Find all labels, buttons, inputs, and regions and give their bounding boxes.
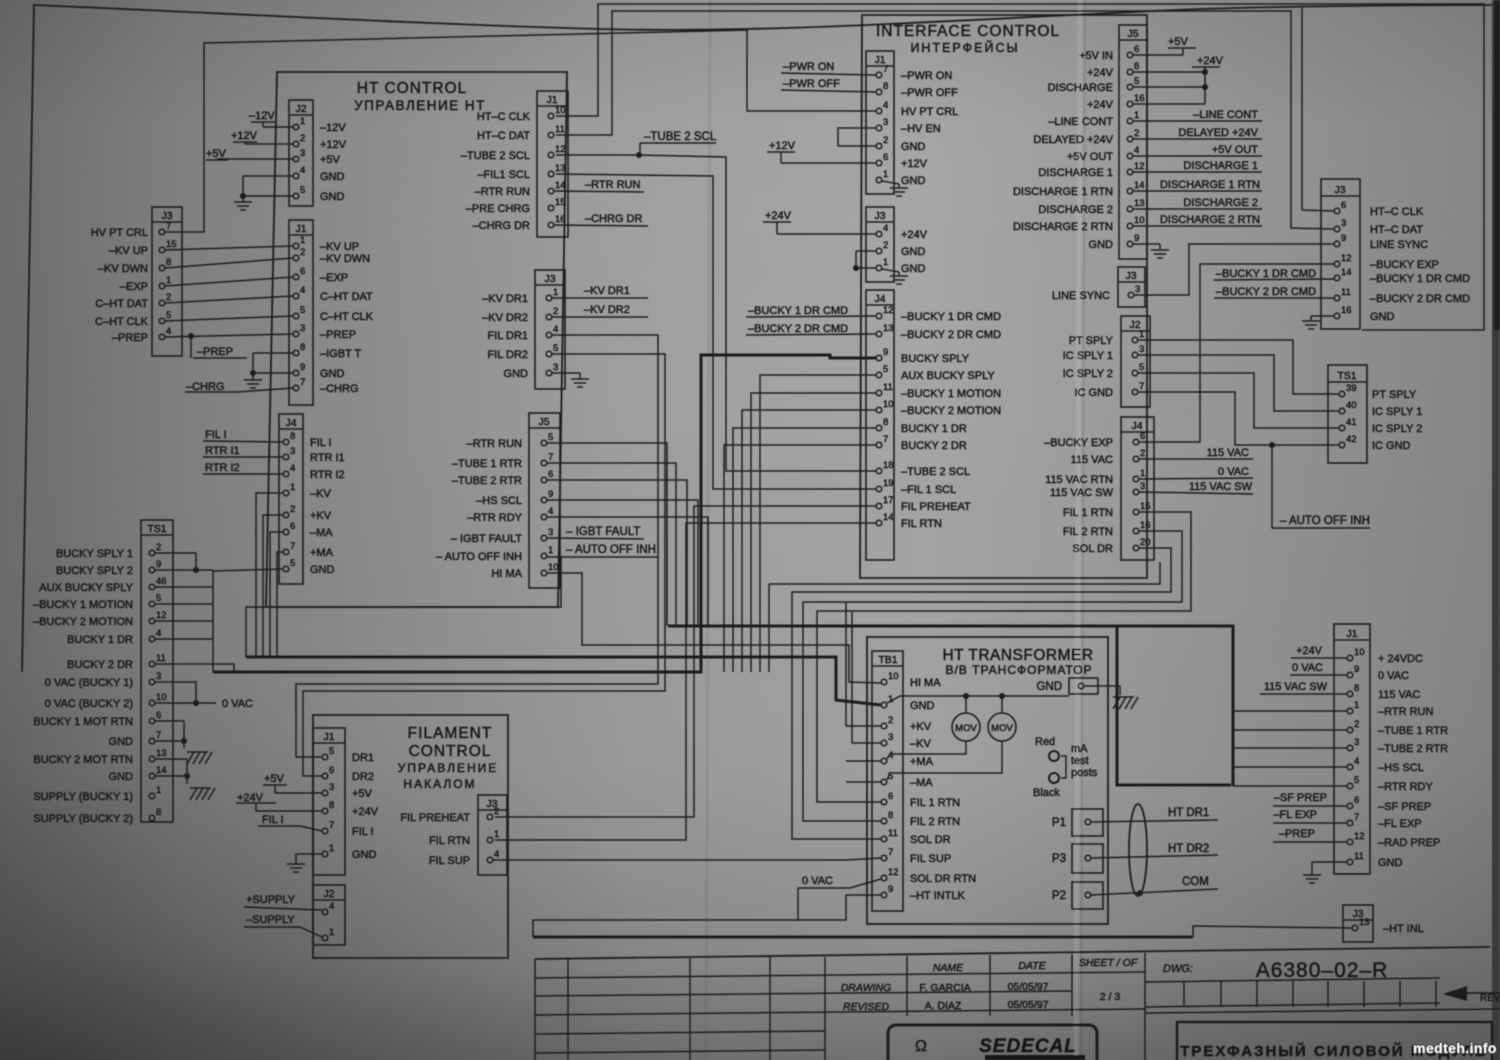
svg-text:–BUCKY 1 MOTION: –BUCKY 1 MOTION xyxy=(901,388,1001,400)
svg-text:P1: P1 xyxy=(1052,817,1066,829)
svg-text:J1: J1 xyxy=(1346,628,1357,640)
svg-text:–KV DWN: –KV DWN xyxy=(98,263,148,275)
svg-text:2: 2 xyxy=(1140,448,1145,459)
svg-text:+5V: +5V xyxy=(320,154,341,166)
svg-text:J1: J1 xyxy=(295,223,306,235)
svg-text:–KV: –KV xyxy=(310,488,331,500)
svg-text:–PRE CHRG: –PRE CHRG xyxy=(466,203,530,215)
svg-text:8: 8 xyxy=(300,342,305,353)
svg-text:BUCKY 1 MOT RTN: BUCKY 1 MOT RTN xyxy=(33,716,133,728)
svg-text:–FIL 1 SCL: –FIL 1 SCL xyxy=(901,484,956,496)
svg-text:12: 12 xyxy=(1341,253,1352,264)
svg-text:+24V: +24V xyxy=(901,229,928,241)
svg-text:10: 10 xyxy=(883,399,894,410)
svg-text:15: 15 xyxy=(166,239,177,250)
svg-text:+24V: +24V xyxy=(1087,67,1114,79)
svg-text:7: 7 xyxy=(300,377,305,388)
svg-text:SOL DR: SOL DR xyxy=(910,834,951,846)
svg-text:0 VAC: 0 VAC xyxy=(1378,670,1409,682)
svg-text:39: 39 xyxy=(1346,383,1357,394)
svg-text:IC GND: IC GND xyxy=(1075,387,1114,399)
svg-text:IC SPLY 1: IC SPLY 1 xyxy=(1063,350,1113,362)
svg-text:RTR I2: RTR I2 xyxy=(310,469,345,481)
svg-text:3: 3 xyxy=(883,117,888,128)
svg-text:7: 7 xyxy=(548,452,553,463)
svg-text:7: 7 xyxy=(329,820,334,831)
svg-text:–HT INTLK: –HT INTLK xyxy=(910,890,965,902)
svg-text:8: 8 xyxy=(156,807,161,818)
svg-text:1: 1 xyxy=(329,927,334,938)
svg-text:14: 14 xyxy=(1341,267,1352,278)
svg-text:–BUCKY EXP: –BUCKY EXP xyxy=(1370,259,1439,271)
svg-text:14: 14 xyxy=(555,180,566,191)
svg-text:F. GARCIA: F. GARCIA xyxy=(919,982,970,994)
svg-text:13: 13 xyxy=(883,323,894,334)
svg-text:DELAYED +24V: DELAYED +24V xyxy=(1178,127,1258,139)
svg-text:11: 11 xyxy=(555,124,565,135)
svg-text:12: 12 xyxy=(555,144,566,155)
svg-text:–TUBE 2 SCL: –TUBE 2 SCL xyxy=(901,466,970,478)
svg-text:7: 7 xyxy=(883,434,888,445)
svg-text:3: 3 xyxy=(1341,218,1346,229)
svg-text:2: 2 xyxy=(553,306,558,317)
svg-text:–CHRG: –CHRG xyxy=(320,383,359,395)
svg-text:НАКАЛОМ: НАКАЛОМ xyxy=(403,777,476,791)
svg-text:–CHRG DR: –CHRG DR xyxy=(473,220,531,232)
svg-text:4: 4 xyxy=(553,324,558,335)
svg-text:DISCHARGE 1: DISCHARGE 1 xyxy=(1183,160,1258,172)
svg-text:–LINE CONT: –LINE CONT xyxy=(1193,109,1258,121)
svg-text:–BUCKY 1 DR CMD: –BUCKY 1 DR CMD xyxy=(1370,273,1470,285)
svg-text:GND: GND xyxy=(1089,239,1114,251)
svg-text:CONTROL: CONTROL xyxy=(409,743,492,760)
svg-text:+SUPPLY: +SUPPLY xyxy=(246,894,296,906)
svg-text:–12V: –12V xyxy=(249,110,275,122)
svg-text:+24V: +24V xyxy=(765,210,792,222)
svg-text:1: 1 xyxy=(1140,468,1145,479)
svg-text:RTR I1: RTR I1 xyxy=(205,445,240,457)
svg-text:7: 7 xyxy=(166,221,171,232)
svg-text:2: 2 xyxy=(883,240,888,251)
svg-text:J5: J5 xyxy=(538,416,549,428)
svg-text:GND: GND xyxy=(320,171,345,183)
svg-text:+5V: +5V xyxy=(1168,36,1189,48)
svg-text:2: 2 xyxy=(300,247,305,258)
svg-text:42: 42 xyxy=(1346,434,1357,445)
svg-text:1: 1 xyxy=(166,275,171,286)
svg-text:FIL DR2: FIL DR2 xyxy=(487,349,528,361)
svg-text:10: 10 xyxy=(888,671,899,682)
svg-text:PT SPLY: PT SPLY xyxy=(1069,335,1114,347)
svg-text:+24V: +24V xyxy=(1296,645,1323,657)
svg-text:3: 3 xyxy=(300,148,305,159)
svg-text:– AUTO OFF INH: – AUTO OFF INH xyxy=(566,544,656,556)
svg-text:9: 9 xyxy=(1354,664,1359,675)
svg-text:AUX BUCKY SPLY: AUX BUCKY SPLY xyxy=(901,370,995,382)
svg-text:FIL I: FIL I xyxy=(262,814,284,826)
svg-text:6: 6 xyxy=(888,791,893,802)
svg-text:6: 6 xyxy=(300,266,305,277)
svg-text:4: 4 xyxy=(494,849,499,860)
svg-text:DRAWING: DRAWING xyxy=(841,982,892,994)
svg-text:+24V: +24V xyxy=(1197,55,1224,67)
svg-text:115 VAC SW: 115 VAC SW xyxy=(1189,481,1253,493)
svg-text:3: 3 xyxy=(290,446,295,457)
svg-text:+5V: +5V xyxy=(206,148,227,160)
svg-text:BUCKY SPLY 1: BUCKY SPLY 1 xyxy=(56,548,133,560)
svg-text:MOV: MOV xyxy=(955,723,977,734)
svg-text:J4: J4 xyxy=(874,293,885,305)
svg-text:NAME: NAME xyxy=(933,962,964,974)
svg-text:GND: GND xyxy=(310,564,335,576)
svg-text:–KV DR1: –KV DR1 xyxy=(584,285,630,297)
svg-text:–KV: –KV xyxy=(910,738,931,750)
svg-text:8: 8 xyxy=(1134,61,1139,72)
svg-text:DISCHARGE 1 RTN: DISCHARGE 1 RTN xyxy=(1160,179,1260,191)
svg-text:1: 1 xyxy=(883,169,888,180)
svg-text:12: 12 xyxy=(883,305,894,316)
svg-text:4: 4 xyxy=(548,506,553,517)
svg-text:16: 16 xyxy=(1134,93,1145,104)
svg-text:–LINE CONT: –LINE CONT xyxy=(1048,116,1113,128)
svg-text:FIL PREHEAT: FIL PREHEAT xyxy=(400,812,470,824)
svg-text:16: 16 xyxy=(1140,520,1151,531)
svg-text:9: 9 xyxy=(1134,233,1139,244)
svg-text:–IGBT T: –IGBT T xyxy=(320,348,361,360)
svg-text:–BUCKY 2 MOTION: –BUCKY 2 MOTION xyxy=(901,405,1001,417)
svg-text:–PWR ON: –PWR ON xyxy=(901,70,952,82)
svg-text:13: 13 xyxy=(156,748,167,759)
svg-text:AUX BUCKY SPLY: AUX BUCKY SPLY xyxy=(39,582,133,594)
svg-text:1: 1 xyxy=(1139,329,1144,340)
svg-text:BUCKY 1 DR: BUCKY 1 DR xyxy=(67,634,133,646)
svg-text:1: 1 xyxy=(548,545,553,556)
svg-text:10: 10 xyxy=(156,692,167,703)
svg-text:2: 2 xyxy=(1134,128,1139,139)
svg-text:–RTR RUN: –RTR RUN xyxy=(585,179,640,191)
svg-text:LINE SYNC: LINE SYNC xyxy=(1370,239,1428,251)
svg-text:GND: GND xyxy=(504,368,529,380)
svg-text:mA: mA xyxy=(1071,743,1088,755)
svg-text:3: 3 xyxy=(888,732,893,743)
svg-text:–MA: –MA xyxy=(910,777,933,789)
svg-text:115 VAC SW: 115 VAC SW xyxy=(1264,681,1328,693)
svg-text:10: 10 xyxy=(555,105,566,116)
svg-text:FIL I: FIL I xyxy=(205,429,227,441)
svg-text:115 VAC: 115 VAC xyxy=(1071,454,1113,466)
svg-text:BUCKY 2 MOT RTN: BUCKY 2 MOT RTN xyxy=(33,754,133,766)
svg-text:1: 1 xyxy=(883,257,888,268)
svg-text:SOL DR RTN: SOL DR RTN xyxy=(910,873,976,885)
svg-text:6: 6 xyxy=(883,152,888,163)
svg-text:–KV DR1: –KV DR1 xyxy=(482,293,528,305)
svg-text:19: 19 xyxy=(883,478,894,489)
svg-text:GND: GND xyxy=(901,246,926,258)
svg-text:2: 2 xyxy=(883,135,888,146)
svg-text:–CHRG: –CHRG xyxy=(186,381,225,393)
svg-text:0 VAC: 0 VAC xyxy=(222,698,253,710)
svg-text:1: 1 xyxy=(1354,700,1359,711)
svg-text:11: 11 xyxy=(156,653,166,664)
svg-text:5: 5 xyxy=(1354,775,1359,786)
svg-text:–PREP: –PREP xyxy=(1279,828,1315,840)
svg-text:– IGBT FAULT: – IGBT FAULT xyxy=(566,526,640,538)
svg-text:6: 6 xyxy=(329,765,334,776)
svg-text:J2: J2 xyxy=(323,888,334,900)
svg-text:FIL 1 RTN: FIL 1 RTN xyxy=(1063,507,1113,519)
svg-text:–KV DR2: –KV DR2 xyxy=(584,304,630,316)
svg-text:3: 3 xyxy=(1354,737,1359,748)
svg-text:HT TRANSFORMER: HT TRANSFORMER xyxy=(942,647,1093,664)
svg-text:УПРАВЛЕНИЕ НТ: УПРАВЛЕНИЕ НТ xyxy=(354,98,486,113)
svg-text:3: 3 xyxy=(548,527,553,538)
svg-text:+12V: +12V xyxy=(320,139,347,151)
svg-text:posts: posts xyxy=(1071,767,1098,779)
svg-text:HI MA: HI MA xyxy=(910,677,941,689)
svg-text:+24V: +24V xyxy=(352,806,379,818)
svg-text:6: 6 xyxy=(1134,44,1139,55)
svg-text:0 VAC: 0 VAC xyxy=(802,875,833,887)
svg-text:13: 13 xyxy=(555,163,566,174)
svg-text:test: test xyxy=(1071,755,1089,767)
svg-text:BUCKY 2 DR: BUCKY 2 DR xyxy=(901,440,967,452)
svg-text:12: 12 xyxy=(156,610,167,621)
svg-text:A. DIAZ: A. DIAZ xyxy=(925,1000,962,1012)
svg-text:5: 5 xyxy=(329,746,334,757)
svg-text:RTR I1: RTR I1 xyxy=(310,452,345,464)
svg-text:–BUCKY 1 DR CMD: –BUCKY 1 DR CMD xyxy=(901,311,1001,323)
svg-text:IC SPLY 2: IC SPLY 2 xyxy=(1063,368,1113,380)
svg-text:HV PT CRL: HV PT CRL xyxy=(901,106,958,118)
svg-text:8: 8 xyxy=(888,810,893,821)
svg-text:–TUBE 2 SCL: –TUBE 2 SCL xyxy=(644,131,717,143)
svg-text:–RTR RDY: –RTR RDY xyxy=(467,512,522,524)
svg-text:RTR I2: RTR I2 xyxy=(205,462,240,474)
svg-text:3: 3 xyxy=(329,782,334,793)
svg-text:–BUCKY 2 DR CMD: –BUCKY 2 DR CMD xyxy=(1370,293,1470,305)
svg-text:12: 12 xyxy=(1134,161,1145,172)
svg-text:FIL DR1: FIL DR1 xyxy=(487,330,528,342)
svg-text:–PWR OFF: –PWR OFF xyxy=(901,87,958,99)
svg-text:–BUCKY 2 DR CMD: –BUCKY 2 DR CMD xyxy=(748,323,848,335)
svg-text:–EXP: –EXP xyxy=(120,281,148,293)
svg-text:IC SPLY 1: IC SPLY 1 xyxy=(1372,406,1422,418)
svg-text:7: 7 xyxy=(888,847,893,858)
svg-text:1: 1 xyxy=(290,482,295,493)
svg-text:GND: GND xyxy=(320,191,345,203)
svg-text:GND: GND xyxy=(1370,311,1395,323)
svg-text:5: 5 xyxy=(553,343,558,354)
svg-text:1: 1 xyxy=(329,843,334,854)
svg-text:HT–C CLK: HT–C CLK xyxy=(477,111,531,123)
svg-text:115 VAC: 115 VAC xyxy=(1378,689,1420,701)
svg-text:GND: GND xyxy=(320,368,345,380)
svg-text:C–HT DAT: C–HT DAT xyxy=(95,298,148,310)
svg-text:DWG:: DWG: xyxy=(1163,963,1193,975)
svg-text:11: 11 xyxy=(888,828,898,839)
svg-text:IC SPLY 2: IC SPLY 2 xyxy=(1372,423,1422,435)
svg-text:+KV: +KV xyxy=(310,510,332,522)
svg-text:C–HT CLK: C–HT CLK xyxy=(95,316,149,328)
svg-text:3: 3 xyxy=(300,323,305,334)
svg-text:–BUCKY 1 MOTION: –BUCKY 1 MOTION xyxy=(33,599,133,611)
svg-text:–BUCKY 1 DR CMD: –BUCKY 1 DR CMD xyxy=(748,305,848,317)
svg-text:0 VAC (BUCKY 1): 0 VAC (BUCKY 1) xyxy=(45,677,133,689)
svg-text:1: 1 xyxy=(494,829,499,840)
svg-text:0 VAC (BUCKY 2): 0 VAC (BUCKY 2) xyxy=(45,698,133,710)
svg-text:4: 4 xyxy=(166,326,171,337)
svg-text:–CHRG DR: –CHRG DR xyxy=(585,213,643,225)
svg-text:2: 2 xyxy=(300,133,305,144)
svg-text:05/05/97: 05/05/97 xyxy=(1008,981,1049,993)
svg-text:9: 9 xyxy=(300,362,305,373)
svg-text:J4: J4 xyxy=(285,417,296,429)
svg-text:13: 13 xyxy=(1134,198,1145,209)
svg-text:5: 5 xyxy=(548,432,553,443)
svg-text:1: 1 xyxy=(156,785,161,796)
svg-text:2: 2 xyxy=(1354,719,1359,730)
svg-text:3: 3 xyxy=(1140,481,1145,492)
svg-text:–PREP: –PREP xyxy=(320,329,356,341)
svg-text:1: 1 xyxy=(553,287,558,298)
svg-text:9: 9 xyxy=(156,559,161,570)
svg-text:115 VAC RTN: 115 VAC RTN xyxy=(1045,474,1113,486)
svg-text:16: 16 xyxy=(1341,305,1352,316)
svg-text:GND: GND xyxy=(352,849,377,861)
svg-text:HV PT CRL: HV PT CRL xyxy=(91,227,148,239)
svg-text:–BUCKY EXP: –BUCKY EXP xyxy=(1044,437,1113,449)
svg-text:–KV DR2: –KV DR2 xyxy=(482,312,528,324)
svg-text:P2: P2 xyxy=(1052,890,1066,902)
svg-text:FIL RTN: FIL RTN xyxy=(429,835,470,847)
svg-text:8: 8 xyxy=(1354,683,1359,694)
svg-text:–RTR RUN: –RTR RUN xyxy=(475,186,530,198)
svg-text:FILAMENT: FILAMENT xyxy=(408,725,493,742)
svg-text:DISCHARGE 2 RTN: DISCHARGE 2 RTN xyxy=(1013,221,1113,233)
svg-text:DISCHARGE 2 RTN: DISCHARGE 2 RTN xyxy=(1160,214,1260,226)
svg-text:4: 4 xyxy=(329,901,334,912)
svg-text:GND: GND xyxy=(109,736,134,748)
svg-text:+5V: +5V xyxy=(264,773,285,785)
svg-text:3: 3 xyxy=(553,362,558,373)
svg-text:5: 5 xyxy=(166,310,171,321)
svg-text:GND: GND xyxy=(1378,857,1403,869)
svg-text:–FL EXP: –FL EXP xyxy=(1378,818,1422,830)
svg-text:Ω: Ω xyxy=(915,1038,927,1055)
svg-text:FIL 2 RTN: FIL 2 RTN xyxy=(1063,526,1113,538)
svg-text:2: 2 xyxy=(156,542,161,553)
svg-text:8: 8 xyxy=(166,257,171,268)
svg-text:14: 14 xyxy=(883,512,894,523)
svg-text:COM: COM xyxy=(1182,876,1209,888)
svg-text:+24V: +24V xyxy=(1087,99,1114,111)
svg-text:–RAD PREP: –RAD PREP xyxy=(1378,837,1440,849)
svg-text:2: 2 xyxy=(166,292,171,303)
svg-text:FIL SUP: FIL SUP xyxy=(910,853,951,865)
svg-text:9: 9 xyxy=(888,884,893,895)
svg-text:PT SPLY: PT SPLY xyxy=(1372,389,1417,401)
svg-text:DR2: DR2 xyxy=(352,771,374,783)
svg-text:11: 11 xyxy=(1354,851,1364,862)
svg-text:DELAYED +24V: DELAYED +24V xyxy=(1033,134,1113,146)
svg-text:3: 3 xyxy=(1135,284,1140,295)
svg-text:10: 10 xyxy=(1134,215,1145,226)
svg-text:GND: GND xyxy=(1036,681,1062,693)
svg-text:115 VAC: 115 VAC xyxy=(1207,447,1249,459)
svg-text:SEDECAL: SEDECAL xyxy=(979,1036,1077,1057)
svg-text:SOL DR: SOL DR xyxy=(1072,543,1113,555)
svg-text:– IGBT FAULT: – IGBT FAULT xyxy=(451,533,522,545)
svg-text:–KV UP: –KV UP xyxy=(109,245,148,257)
svg-text:SUPPLY (BUCKY 1): SUPPLY (BUCKY 1) xyxy=(33,791,133,803)
svg-text:IC GND: IC GND xyxy=(1372,440,1411,452)
svg-text:+12V: +12V xyxy=(769,140,796,152)
svg-text:HI MA: HI MA xyxy=(491,568,522,580)
svg-text:5: 5 xyxy=(156,593,161,604)
svg-text:–PREP: –PREP xyxy=(197,346,233,358)
svg-text:40: 40 xyxy=(1346,400,1357,411)
svg-text:REV: REV xyxy=(1480,993,1500,1004)
svg-text:medteh.info: medteh.info xyxy=(1413,1040,1497,1056)
svg-text:4: 4 xyxy=(300,165,305,176)
svg-text:J3: J3 xyxy=(1334,184,1345,196)
svg-text:7: 7 xyxy=(883,64,888,75)
svg-text:TB1: TB1 xyxy=(878,654,897,666)
svg-text:5: 5 xyxy=(290,558,295,569)
svg-text:4: 4 xyxy=(1134,145,1139,156)
svg-text:–TUBE 2 RTR: –TUBE 2 RTR xyxy=(452,475,522,487)
svg-text:J5: J5 xyxy=(1127,28,1138,40)
svg-text:+KV: +KV xyxy=(910,721,932,733)
svg-text:+ 24VDC: + 24VDC xyxy=(1378,653,1423,665)
svg-text:ИНТЕРФЕЙСЫ: ИНТЕРФЕЙСЫ xyxy=(910,40,1019,55)
svg-text:GND: GND xyxy=(910,700,935,712)
svg-text:FIL RTN: FIL RTN xyxy=(901,518,942,530)
svg-text:2: 2 xyxy=(888,715,893,726)
svg-text:–FL EXP: –FL EXP xyxy=(1273,809,1317,821)
svg-text:FIL SUP: FIL SUP xyxy=(429,855,470,867)
svg-text:8: 8 xyxy=(329,800,334,811)
svg-text:–KV DWN: –KV DWN xyxy=(320,253,370,265)
svg-text:–RTR RUN: –RTR RUN xyxy=(467,438,522,450)
svg-text:BUCKY 2 DR: BUCKY 2 DR xyxy=(67,659,133,671)
svg-text:4: 4 xyxy=(1354,756,1359,767)
svg-text:DISCHARGE: DISCHARGE xyxy=(1048,82,1113,94)
svg-text:2: 2 xyxy=(290,504,295,515)
svg-text:+5V IN: +5V IN xyxy=(1079,50,1113,62)
svg-text:–BUCKY 2 MOTION: –BUCKY 2 MOTION xyxy=(33,616,133,628)
svg-text:DATE: DATE xyxy=(1018,960,1046,972)
svg-text:Red: Red xyxy=(1035,736,1055,748)
svg-text:DISCHARGE 2: DISCHARGE 2 xyxy=(1183,197,1258,209)
svg-text:–PWR ON: –PWR ON xyxy=(783,61,834,73)
svg-text:12: 12 xyxy=(888,867,899,878)
svg-text:– AUTO OFF INH: – AUTO OFF INH xyxy=(1280,515,1370,527)
svg-text:–BUCKY 2 DR CMD: –BUCKY 2 DR CMD xyxy=(901,329,1001,341)
svg-text:GND: GND xyxy=(901,141,926,153)
svg-text:2: 2 xyxy=(494,806,499,817)
svg-text:–RTR RDY: –RTR RDY xyxy=(1378,781,1433,793)
svg-text:5: 5 xyxy=(300,305,305,316)
svg-text:HT–C CLK: HT–C CLK xyxy=(1370,206,1424,218)
svg-text:–FIL1 SCL: –FIL1 SCL xyxy=(477,169,530,181)
svg-text:9: 9 xyxy=(1341,233,1346,244)
svg-text:LINE SYNC: LINE SYNC xyxy=(1052,290,1110,302)
svg-text:–HS SCL: –HS SCL xyxy=(1378,762,1424,774)
svg-text:J1: J1 xyxy=(323,731,334,743)
svg-text:J3: J3 xyxy=(544,273,555,285)
svg-text:–SF PREP: –SF PREP xyxy=(1378,801,1431,813)
